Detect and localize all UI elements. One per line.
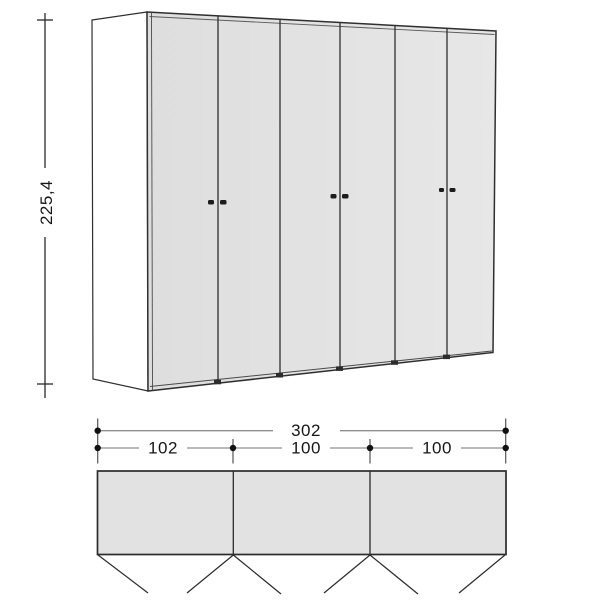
overall-width-label: 302 [291,421,321,440]
door-handle-icon [331,194,337,199]
wardrobe-dimension-diagram: 225,4 [0,0,600,600]
side-panel [92,12,148,391]
section1-width-label: 102 [148,439,178,458]
wardrobe-body [92,12,496,391]
door-swing-4 [324,555,370,593]
diagram-canvas: 225,4 [0,0,600,600]
foot-4 [391,360,398,365]
foot-5 [443,355,450,360]
door-front-face [147,12,496,391]
section-width-dimension: 102 100 100 [98,439,506,458]
door-swing-5 [370,555,418,594]
width-dimensions: 302 102 100 100 [95,419,509,464]
door-handle-icon [450,188,456,192]
foot-3 [336,366,343,371]
dim-dot [230,445,236,451]
door-swing-3 [233,555,281,594]
plan-view [98,471,507,594]
dim-dot [95,445,101,451]
door-swing-lines [98,555,505,594]
dim-dot [503,445,509,451]
dim-dot [95,428,101,434]
dim-dot [367,445,373,451]
door-handle-icon [342,194,349,199]
foot-2 [276,373,283,378]
dim-dot [503,428,509,434]
overall-width-dimension: 302 [98,421,506,440]
door-swing-2 [187,555,233,593]
door-swing-1 [98,555,148,593]
plan-carcass [98,471,507,555]
door-handle-icon [208,200,214,205]
door-handle-icon [220,200,227,205]
door-handle-icon [439,188,444,192]
section2-width-label: 100 [291,439,321,458]
height-dimension: 225,4 [37,13,56,398]
front-view: 225,4 [37,12,496,398]
height-dimension-label: 225,4 [37,180,56,225]
section3-width-label: 100 [422,439,452,458]
door-swing-6 [459,555,505,593]
foot-1 [214,380,221,385]
